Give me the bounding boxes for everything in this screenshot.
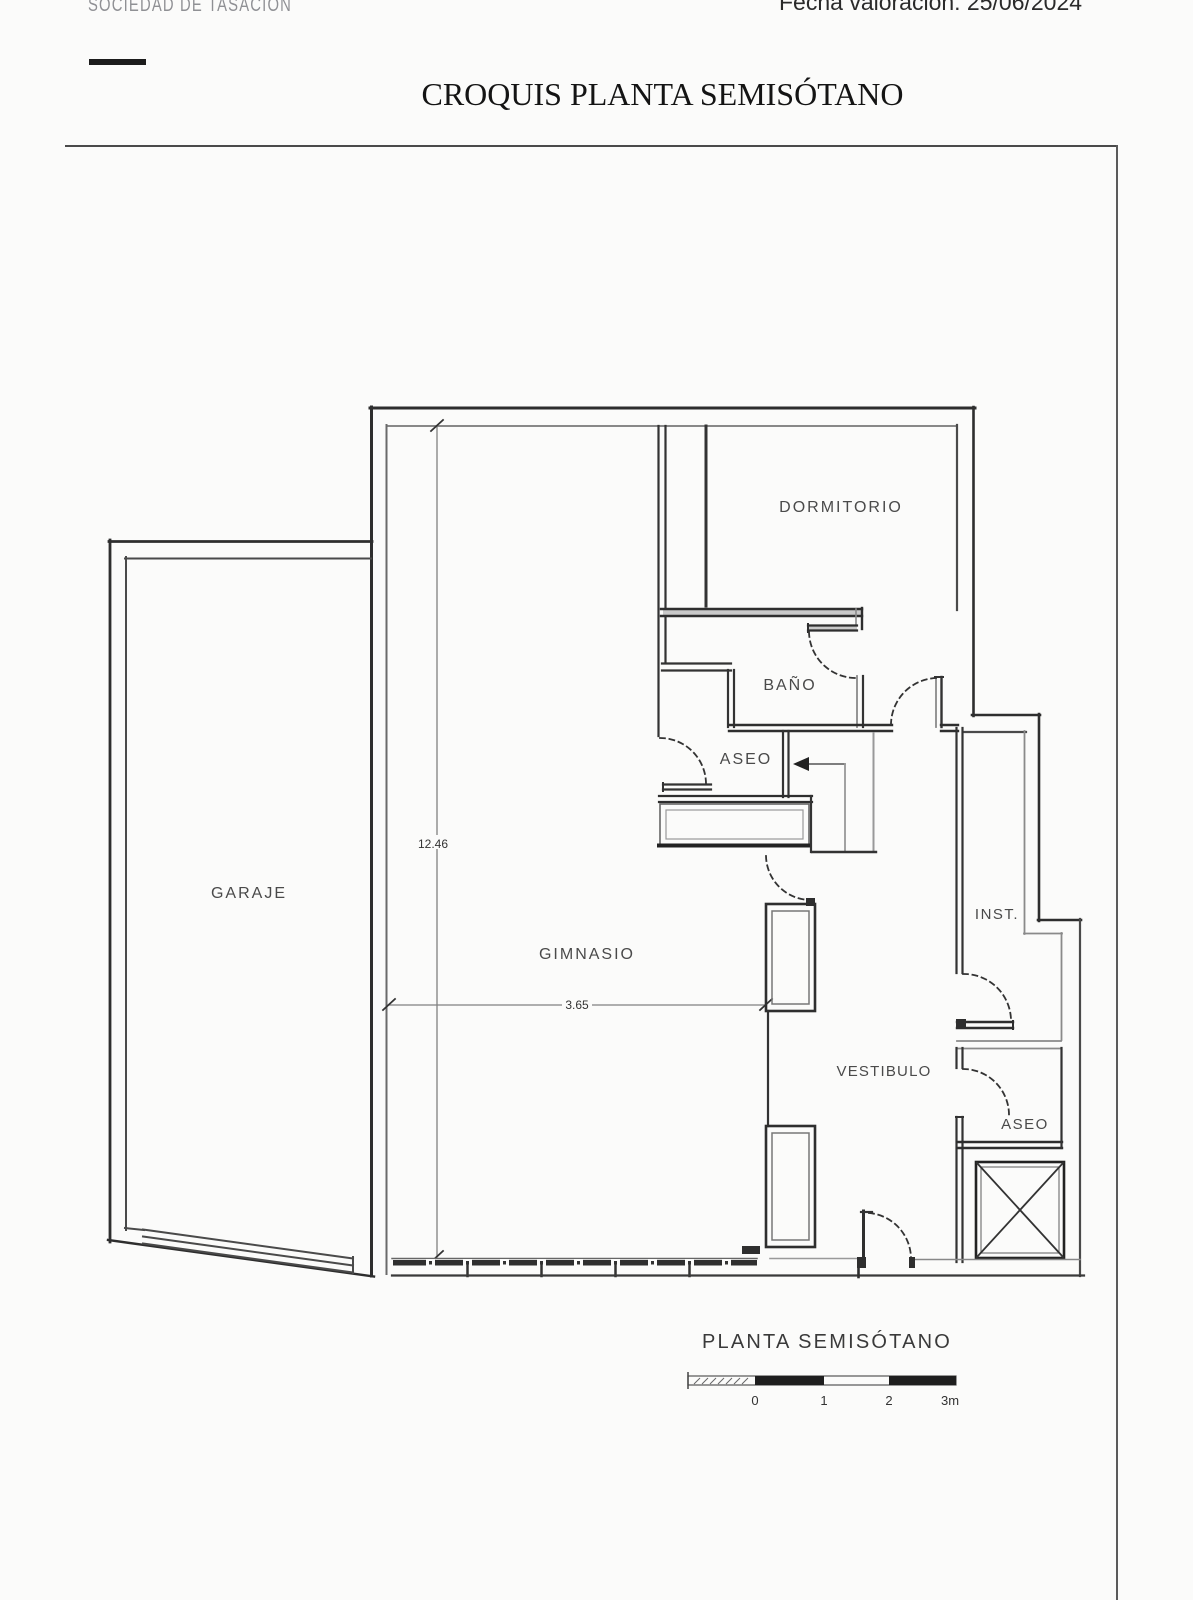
svg-text:1: 1 [820, 1393, 827, 1408]
svg-text:ASEO: ASEO [1001, 1116, 1049, 1133]
svg-text:VESTIBULO: VESTIBULO [837, 1063, 932, 1080]
svg-text:GIMNASIO: GIMNASIO [539, 946, 635, 963]
svg-text:DORMITORIO: DORMITORIO [779, 499, 903, 516]
svg-text:2: 2 [885, 1393, 892, 1408]
svg-text:ASEO: ASEO [720, 751, 772, 768]
svg-text:PLANTA SEMISÓTANO: PLANTA SEMISÓTANO [702, 1330, 952, 1353]
svg-text:INST.: INST. [975, 906, 1019, 923]
svg-text:3m: 3m [941, 1393, 959, 1408]
svg-text:0: 0 [751, 1393, 758, 1408]
svg-text:GARAJE: GARAJE [211, 885, 287, 902]
svg-text:12.46: 12.46 [418, 837, 448, 851]
svg-text:BAÑO: BAÑO [763, 674, 816, 694]
svg-text:3.65: 3.65 [565, 998, 589, 1012]
